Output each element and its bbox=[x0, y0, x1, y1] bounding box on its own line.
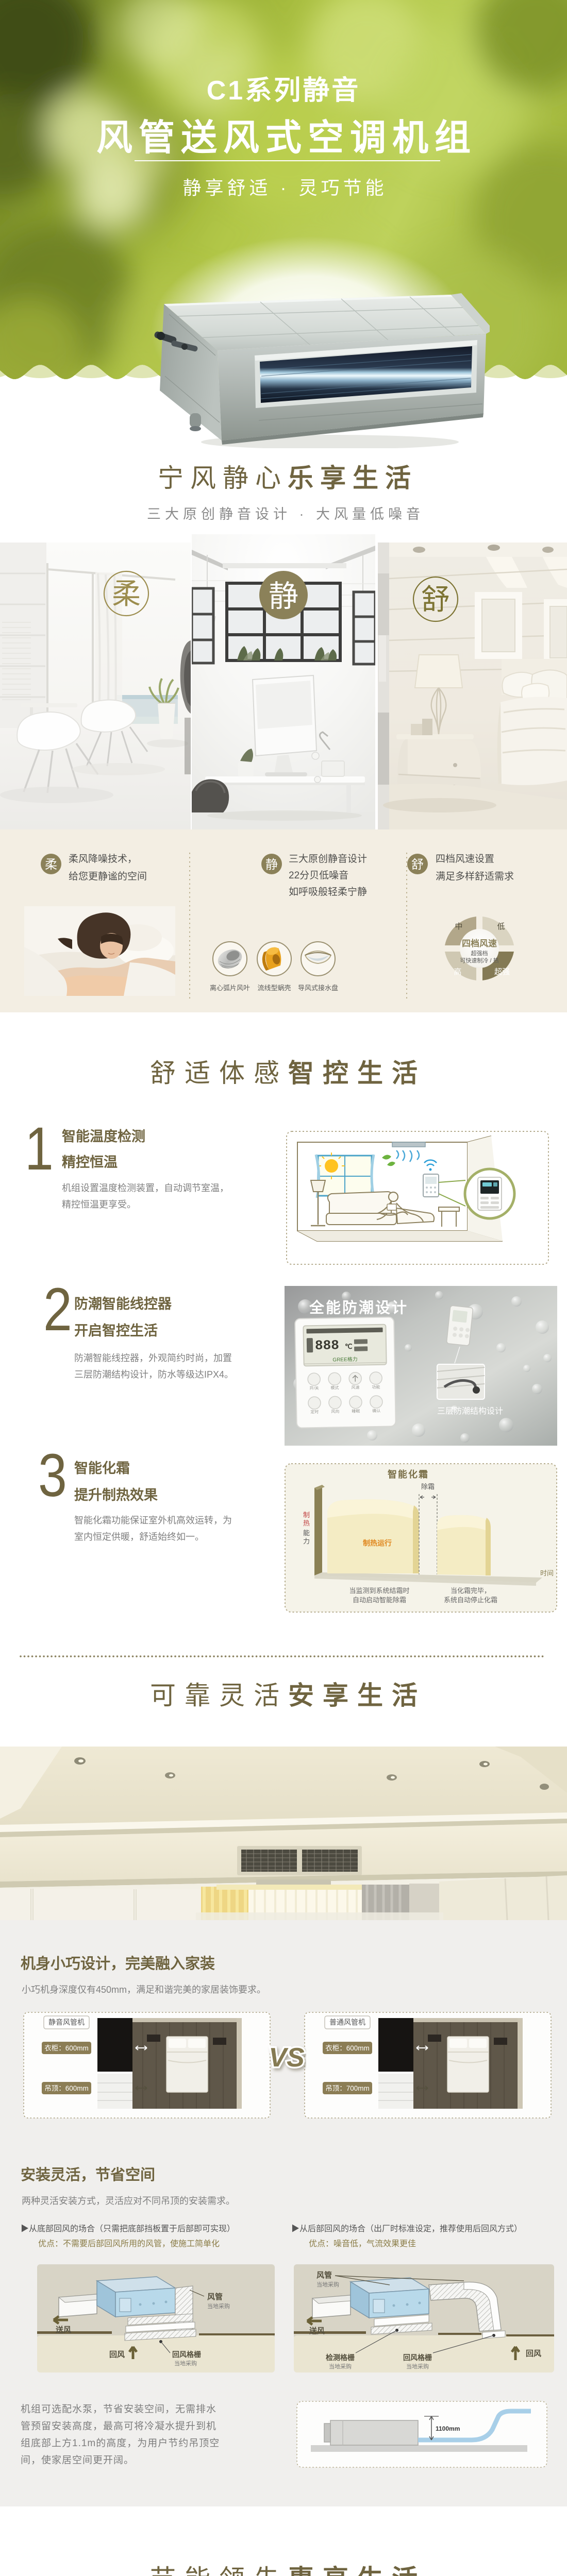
svg-text:888: 888 bbox=[315, 1337, 339, 1353]
svg-text:超强: 超强 bbox=[494, 968, 510, 976]
svg-text:四档风速设置: 四档风速设置 bbox=[436, 853, 494, 865]
svg-text:定时: 定时 bbox=[310, 1409, 319, 1414]
svg-text:当地采购: 当地采购 bbox=[329, 2363, 352, 2370]
svg-text:制: 制 bbox=[303, 1511, 310, 1519]
svg-text:回风格栅: 回风格栅 bbox=[172, 2350, 201, 2359]
svg-text:高: 高 bbox=[454, 968, 461, 976]
svg-text:可快速制冷 / 热: 可快速制冷 / 热 bbox=[460, 957, 498, 964]
svg-text:检测格栅: 检测格栅 bbox=[326, 2353, 355, 2362]
svg-text:回风格栅: 回风格栅 bbox=[403, 2353, 432, 2362]
svg-text:流线型蜗壳: 流线型蜗壳 bbox=[257, 984, 291, 992]
svg-text:当地采购: 当地采购 bbox=[316, 2281, 339, 2288]
svg-text:吊顶：600mm: 吊顶：600mm bbox=[44, 2084, 89, 2092]
svg-text:柔: 柔 bbox=[112, 578, 141, 610]
svg-text:当地采购: 当地采购 bbox=[174, 2360, 197, 2367]
svg-text:GREE格力: GREE格力 bbox=[332, 1356, 358, 1363]
svg-text:四档风速: 四档风速 bbox=[462, 938, 497, 948]
svg-text:如呼吸般轻柔宁静: 如呼吸般轻柔宁静 bbox=[289, 886, 367, 897]
svg-text:当监测到系统结霜时: 当监测到系统结霜时 bbox=[349, 1587, 409, 1595]
svg-text:时间: 时间 bbox=[540, 1569, 554, 1577]
svg-text:舒: 舒 bbox=[411, 858, 424, 872]
svg-text:送风: 送风 bbox=[55, 2325, 71, 2334]
svg-text:能: 能 bbox=[303, 1529, 310, 1537]
svg-text:柔: 柔 bbox=[45, 858, 57, 872]
svg-text:制热运行: 制热运行 bbox=[363, 1539, 392, 1547]
svg-text:满足多样舒适需求: 满足多样舒适需求 bbox=[436, 871, 514, 882]
svg-text:除霜: 除霜 bbox=[421, 1483, 435, 1490]
svg-text:功能: 功能 bbox=[372, 1384, 380, 1389]
svg-text:三大原创静音设计: 三大原创静音设计 bbox=[289, 853, 367, 865]
svg-text:智能化霜: 智能化霜 bbox=[388, 1469, 429, 1480]
svg-text:力: 力 bbox=[303, 1537, 310, 1545]
svg-text:三层防潮结构设计: 三层防潮结构设计 bbox=[437, 1406, 503, 1416]
svg-text:离心弧片风叶: 离心弧片风叶 bbox=[210, 984, 250, 992]
svg-text:中: 中 bbox=[455, 922, 462, 931]
svg-text:衣柜：600mm: 衣柜：600mm bbox=[44, 2044, 89, 2052]
svg-text:当地采购: 当地采购 bbox=[406, 2363, 429, 2370]
svg-text:给您更静谧的空间: 给您更静谧的空间 bbox=[69, 871, 147, 882]
svg-text:舒: 舒 bbox=[421, 583, 450, 616]
svg-text:1100mm: 1100mm bbox=[436, 2425, 460, 2432]
svg-text:吊顶：700mm: 吊顶：700mm bbox=[325, 2084, 370, 2092]
svg-text:系统自动停止化霜: 系统自动停止化霜 bbox=[444, 1596, 497, 1604]
svg-text:静: 静 bbox=[269, 580, 298, 613]
svg-text:℃: ℃ bbox=[345, 1343, 353, 1350]
svg-text:自动启动智能除霜: 自动启动智能除霜 bbox=[353, 1596, 406, 1604]
svg-text:模式: 模式 bbox=[330, 1385, 339, 1390]
svg-text:睡眠: 睡眠 bbox=[352, 1409, 360, 1414]
svg-text:导风式接水盘: 导风式接水盘 bbox=[298, 984, 338, 992]
svg-text:超强档: 超强档 bbox=[471, 950, 488, 957]
svg-text:全能防潮设计: 全能防潮设计 bbox=[309, 1299, 408, 1316]
svg-text:当化霜完毕，: 当化霜完毕， bbox=[451, 1587, 491, 1595]
svg-text:回风: 回风 bbox=[526, 2349, 541, 2358]
svg-text:柔风降噪技术，: 柔风降噪技术， bbox=[69, 853, 137, 865]
svg-text:风管: 风管 bbox=[316, 2270, 332, 2280]
svg-text:开/关: 开/关 bbox=[309, 1385, 319, 1391]
svg-text:静: 静 bbox=[265, 858, 278, 872]
svg-text:热: 热 bbox=[303, 1519, 310, 1527]
svg-text:回风: 回风 bbox=[109, 2350, 125, 2359]
svg-text:衣柜：600mm: 衣柜：600mm bbox=[325, 2044, 370, 2052]
svg-text:静音风管机: 静音风管机 bbox=[48, 2018, 85, 2026]
svg-text:VS: VS bbox=[269, 2043, 305, 2073]
svg-text:风速: 风速 bbox=[351, 1385, 359, 1390]
svg-text:风管: 风管 bbox=[207, 2292, 223, 2301]
svg-text:当地采购: 当地采购 bbox=[207, 2302, 230, 2310]
svg-text:22分贝低噪音: 22分贝低噪音 bbox=[289, 870, 348, 881]
svg-text:低: 低 bbox=[497, 922, 505, 931]
svg-text:普通风管机: 普通风管机 bbox=[329, 2018, 365, 2026]
svg-text:确认: 确认 bbox=[372, 1408, 380, 1413]
svg-text:送风: 送风 bbox=[309, 2326, 325, 2335]
svg-text:风向: 风向 bbox=[331, 1409, 339, 1414]
